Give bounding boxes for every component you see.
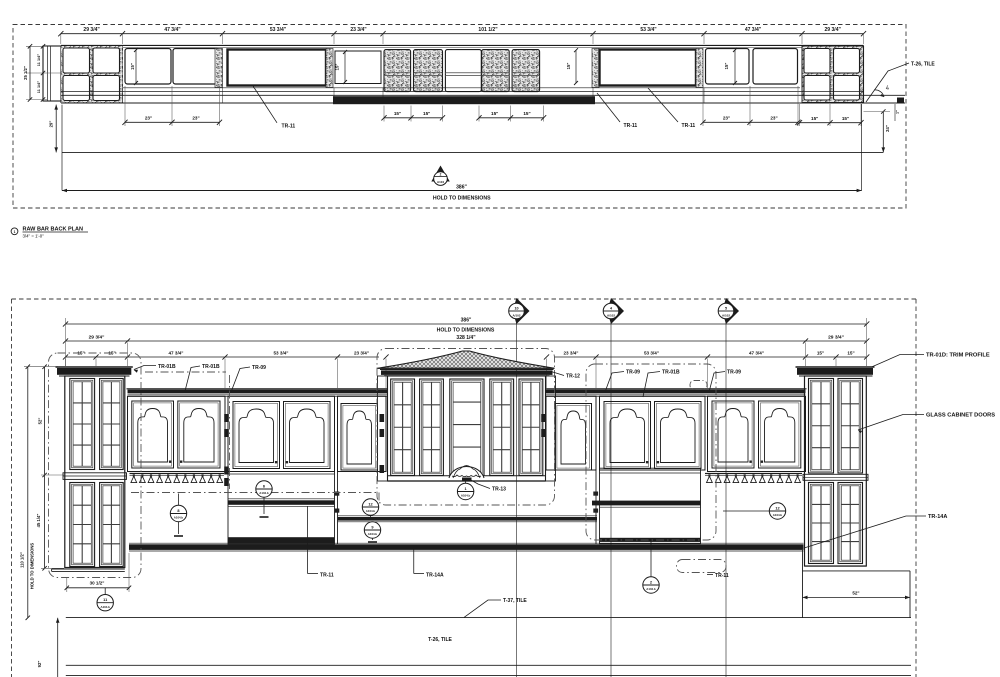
svg-text:23": 23" [145,116,152,121]
svg-text:24": 24" [885,125,890,132]
svg-text:23 3/4": 23 3/4" [350,27,367,33]
svg-text:15": 15" [847,350,854,355]
svg-text:15": 15" [842,116,849,121]
svg-text:A104.b: A104.b [368,532,378,536]
svg-text:15": 15" [817,350,824,355]
svg-text:RAW BAR BACK PLAN: RAW BAR BACK PLAN [23,226,84,232]
svg-text:23": 23" [723,116,730,121]
svg-text:15": 15" [130,63,135,70]
svg-text:47 3/4": 47 3/4" [749,350,764,355]
svg-text:30 1/2": 30 1/2" [90,581,105,586]
svg-text:386": 386" [461,318,472,324]
svg-text:15": 15" [335,64,340,71]
svg-text:45 1/4": 45 1/4" [36,514,41,528]
svg-text:T-26, TILE: T-26, TILE [428,637,452,643]
svg-text:23 3/4": 23 3/4" [354,350,369,355]
svg-text:53 3/4": 53 3/4" [640,27,657,33]
svg-text:TR-12: TR-12 [566,374,580,380]
svg-text:A104.b: A104.b [174,516,184,520]
svg-text:A/102: A/102 [512,314,520,318]
svg-text:HOLD TO DIMENSIONS: HOLD TO DIMENSIONS [433,196,491,202]
svg-text:A104.b: A104.b [646,587,656,591]
svg-text:15": 15" [394,111,401,116]
svg-text:29 3/4": 29 3/4" [828,335,844,341]
svg-text:328 1/4": 328 1/4" [456,335,476,341]
svg-text:29": 29" [49,121,54,128]
svg-text:23": 23" [192,116,199,121]
svg-text:29 3/4": 29 3/4" [825,27,842,33]
svg-text:A104.b: A104.b [259,491,269,495]
svg-text:25 1/2": 25 1/2" [23,66,28,80]
svg-text:12: 12 [368,502,372,506]
svg-text:92": 92" [37,661,42,668]
svg-text:TR-01B: TR-01B [202,364,220,370]
svg-text:TR-11: TR-11 [624,123,638,129]
svg-text:29 3/4": 29 3/4" [89,335,105,341]
svg-text:386": 386" [456,184,467,190]
svg-text:A/102: A/102 [722,314,730,318]
svg-text:A104.b: A104.b [461,494,471,498]
svg-text:A104.b: A104.b [101,605,111,609]
svg-text:10: 10 [514,306,518,310]
svg-text:53 3/4": 53 3/4" [270,27,287,33]
svg-text:52": 52" [852,590,859,595]
svg-text:53 3/4": 53 3/4" [273,350,288,355]
svg-text:TR-09: TR-09 [727,370,741,376]
svg-text:A/102: A/102 [607,314,615,318]
svg-text:12: 12 [775,506,779,510]
svg-text:15": 15" [523,111,530,116]
svg-text:53 3/4": 53 3/4" [644,350,659,355]
svg-text:A104.b: A104.b [366,509,376,513]
svg-text:2: 2 [440,172,442,176]
svg-text:TR-14A: TR-14A [928,514,947,520]
svg-text:TR-14A: TR-14A [426,573,444,579]
svg-text:9: 9 [371,525,373,529]
svg-text:11 1/4": 11 1/4" [37,81,41,94]
svg-text:A104: A104 [437,180,444,184]
svg-text:TR-11: TR-11 [715,573,729,579]
svg-text:TR-11: TR-11 [682,123,696,129]
svg-text:15": 15" [811,116,818,121]
svg-text:TR-01D: TRIM PROFILE: TR-01D: TRIM PROFILE [926,353,990,359]
svg-text:101 1/2": 101 1/2" [478,27,498,33]
svg-text:110 1/2": 110 1/2" [19,552,24,568]
svg-text:47 3/4": 47 3/4" [745,27,762,33]
svg-text:15": 15" [423,111,430,116]
svg-text:23 3/4": 23 3/4" [563,350,578,355]
svg-text:1: 1 [14,230,16,234]
svg-text:HOLD TO DIMENSIONS: HOLD TO DIMENSIONS [30,543,35,590]
svg-text:47 3/4": 47 3/4" [168,350,183,355]
svg-text:29 3/4": 29 3/4" [83,27,100,33]
svg-text:52": 52" [37,418,42,425]
svg-text:TR-09: TR-09 [252,365,266,371]
svg-text:5: 5 [725,306,727,310]
svg-text:47 3/4": 47 3/4" [164,27,181,33]
svg-text:2: 2 [650,580,652,584]
svg-text:A104.b: A104.b [773,513,783,517]
svg-text:3/4" = 1'-0": 3/4" = 1'-0" [23,233,45,238]
svg-text:TR-01B: TR-01B [158,364,176,370]
svg-text:15": 15" [724,63,729,70]
svg-text:15": 15" [566,63,571,70]
svg-text:TR-09: TR-09 [626,370,640,376]
svg-text:11 1/4": 11 1/4" [37,54,41,67]
svg-text:23": 23" [770,116,777,121]
svg-text:T-26, TILE: T-26, TILE [911,62,935,68]
svg-text:GLASS CABINET DOORS: GLASS CABINET DOORS [926,413,995,419]
svg-text:TR-01B: TR-01B [662,370,680,376]
svg-text:T-37, TILE: T-37, TILE [503,598,527,604]
svg-text:15": 15" [491,111,498,116]
svg-text:TR-13: TR-13 [492,487,506,493]
svg-text:TR-11: TR-11 [282,123,296,129]
svg-text:1": 1" [896,110,900,114]
svg-text:TR-11: TR-11 [320,573,334,579]
svg-text:HOLD TO DIMENSIONS: HOLD TO DIMENSIONS [437,328,495,334]
svg-text:6: 6 [263,484,265,488]
